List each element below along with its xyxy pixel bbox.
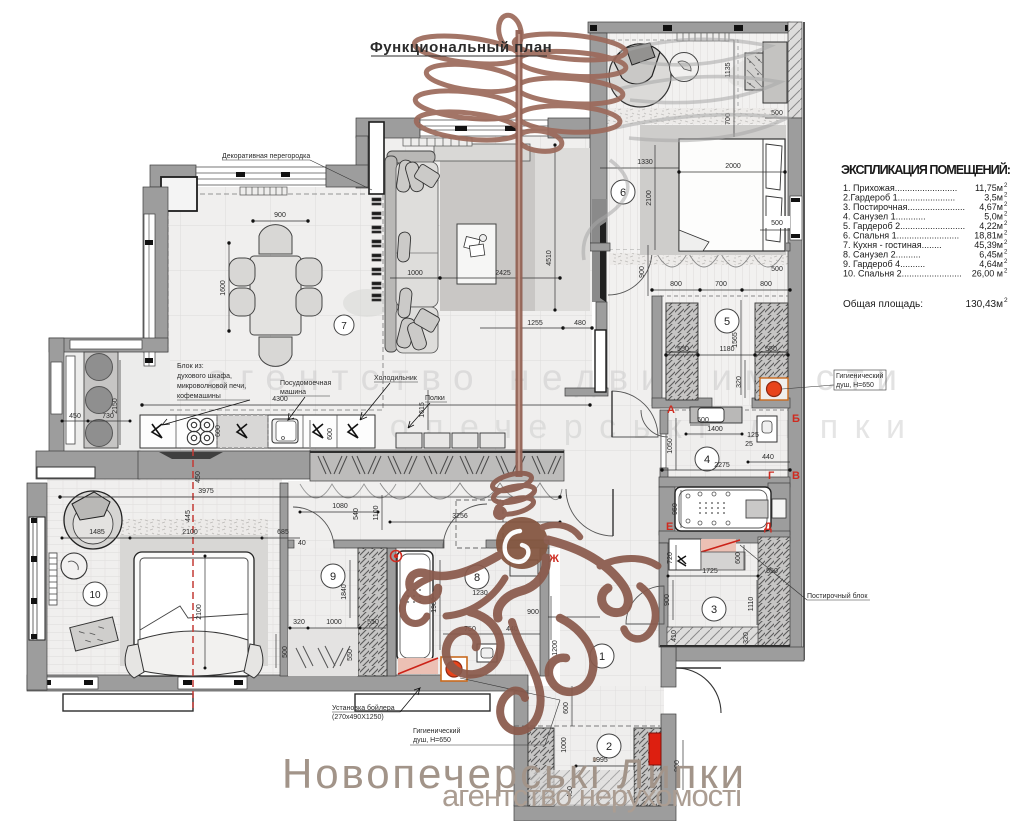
svg-text:1080: 1080 [332,503,348,510]
svg-text:3,5м: 3,5м [984,193,1003,203]
svg-text:3: 3 [711,604,717,616]
svg-text:Б: Б [792,413,800,425]
svg-text:10. Спальня 2.................: 10. Спальня 2........................ [843,269,962,279]
svg-text:Посудомоечная: Посудомоечная [280,380,331,387]
svg-text:2425: 2425 [495,270,511,277]
svg-text:900: 900 [664,594,671,606]
svg-text:4. Санузел 1............: 4. Санузел 1............ [843,212,926,222]
svg-text:Холодильник: Холодильник [374,375,418,382]
svg-text:1000: 1000 [407,270,423,277]
svg-text:600: 600 [327,428,334,440]
svg-text:А: А [667,404,675,416]
svg-text:1180: 1180 [719,346,734,353]
svg-text:500: 500 [282,646,289,658]
svg-text:440: 440 [762,454,774,461]
svg-text:Постирочный блок: Постирочный блок [807,592,868,600]
svg-text:600: 600 [563,702,570,714]
svg-text:320: 320 [743,632,750,644]
svg-text:320: 320 [293,619,305,626]
svg-text:духового шкафа,: духового шкафа, [177,373,232,380]
svg-text:480: 480 [574,320,586,327]
svg-text:125: 125 [747,432,759,439]
svg-text:Д: Д [764,521,772,533]
svg-text:685: 685 [277,529,289,536]
svg-text:2: 2 [1004,297,1008,304]
svg-text:540: 540 [353,508,360,520]
svg-text:Установка бойлера: Установка бойлера [332,704,395,712]
svg-text:410: 410 [671,630,678,642]
svg-text:5. Гардероб 2.................: 5. Гардероб 2.......................... [843,221,965,231]
svg-text:1615: 1615 [419,402,426,418]
svg-text:2100: 2100 [646,190,653,206]
svg-text:2100: 2100 [196,604,203,620]
svg-text:550: 550 [367,619,379,626]
svg-text:5,0м: 5,0м [984,212,1003,222]
svg-text:1110: 1110 [748,597,755,612]
svg-text:1485: 1485 [89,529,105,536]
svg-text:душ, Н=650: душ, Н=650 [413,737,451,744]
svg-text:агентство нерухомості: агентство нерухомості [442,778,742,813]
svg-text:500: 500 [697,417,709,424]
svg-text:950: 950 [672,503,679,515]
svg-text:(270х490Х1250): (270х490Х1250) [332,714,384,721]
svg-text:25: 25 [745,441,753,448]
svg-text:450: 450 [69,413,81,420]
svg-text:4,64м: 4,64м [979,259,1003,269]
svg-text:Блок из:: Блок из: [177,363,204,370]
svg-text:Г: Г [768,470,775,482]
svg-text:11,75м: 11,75м [975,183,1003,193]
svg-text:4,22м: 4,22м [979,221,1003,231]
svg-text:1600: 1600 [220,280,227,296]
svg-text:6. Спальня 1..................: 6. Спальня 1......................... [843,231,959,241]
svg-text:7: 7 [341,321,347,332]
svg-text:550: 550 [765,346,777,353]
svg-text:2.Гардероб 1..................: 2.Гардероб 1....................... [843,193,955,203]
svg-text:1000: 1000 [326,619,342,626]
svg-text:26,00 м: 26,00 м [972,269,1003,279]
svg-text:8. Санузел 2..........: 8. Санузел 2.......... [843,250,921,260]
svg-text:Гигиенический: Гигиенический [413,727,460,735]
svg-text:7. Кухня - гостиная........: 7. Кухня - гостиная........ [843,240,942,250]
svg-text:1255: 1255 [527,320,543,327]
svg-text:9: 9 [330,571,336,583]
svg-text:1400: 1400 [707,426,723,433]
svg-text:кофемашины: кофемашины [177,393,221,400]
svg-text:Функциональный план: Функциональный план [370,39,552,56]
svg-text:2275: 2275 [714,462,730,469]
svg-text:500: 500 [771,220,783,227]
svg-text:В: В [792,470,800,482]
svg-text:4,67м: 4,67м [979,202,1003,212]
svg-text:8: 8 [474,572,480,584]
svg-text:600: 600 [215,425,222,437]
svg-text:450: 450 [195,471,202,483]
svg-text:800: 800 [670,281,682,288]
svg-text:Гигиенический: Гигиенический [836,372,883,380]
svg-text:45,39м: 45,39м [974,240,1003,250]
svg-text:душ, Н=650: душ, Н=650 [836,382,874,389]
svg-text:320: 320 [736,376,743,388]
svg-text:600: 600 [735,552,742,564]
svg-text:ЭКСПЛИКАЦИЯ ПОМЕЩЕНИЙ:: ЭКСПЛИКАЦИЯ ПОМЕЩЕНИЙ: [841,162,1011,177]
svg-text:10: 10 [89,590,101,601]
svg-text:900: 900 [274,212,286,219]
svg-text:130,43м: 130,43м [966,299,1004,310]
svg-text:Декоративная перегородка: Декоративная перегородка [222,153,310,160]
svg-text:6,45м: 6,45м [979,250,1003,260]
svg-text:900: 900 [639,266,646,278]
svg-text:1: 1 [599,651,605,663]
svg-text:900: 900 [527,609,539,616]
svg-text:445: 445 [185,510,192,522]
svg-text:3256: 3256 [452,513,468,520]
svg-text:Полки: Полки [425,395,445,402]
svg-text:5: 5 [724,316,730,328]
svg-text:Общая площадь:: Общая площадь: [843,298,923,310]
svg-text:микроволновой печи,: микроволновой печи, [177,382,246,390]
svg-text:2150: 2150 [112,398,119,414]
svg-text:машина: машина [280,389,306,396]
svg-text:4510: 4510 [546,250,553,266]
svg-text:800: 800 [760,281,772,288]
svg-text:1330: 1330 [637,159,653,166]
svg-text:1050: 1050 [667,438,674,454]
svg-text:550: 550 [677,346,689,353]
svg-text:Е: Е [666,521,673,533]
svg-text:700: 700 [715,281,727,288]
svg-text:550: 550 [347,649,354,661]
svg-text:1200: 1200 [552,640,559,656]
svg-text:2000: 2000 [725,163,741,170]
svg-text:9. Гардероб 4..........: 9. Гардероб 4.......... [843,259,925,269]
svg-text:18,81м: 18,81м [974,231,1003,241]
svg-text:1840: 1840 [341,584,348,600]
svg-text:1725: 1725 [702,568,718,575]
svg-text:720: 720 [667,552,674,564]
svg-text:3. Постирочная................: 3. Постирочная....................... [843,202,965,212]
svg-text:1. Прихожая...................: 1. Прихожая......................... [843,183,957,193]
svg-text:40: 40 [298,540,306,547]
svg-text:3975: 3975 [198,488,214,495]
svg-text:2100: 2100 [182,529,198,536]
svg-text:4: 4 [704,454,710,466]
svg-text:500: 500 [771,266,783,273]
svg-text:4300: 4300 [272,396,288,403]
svg-text:1100: 1100 [373,505,380,520]
